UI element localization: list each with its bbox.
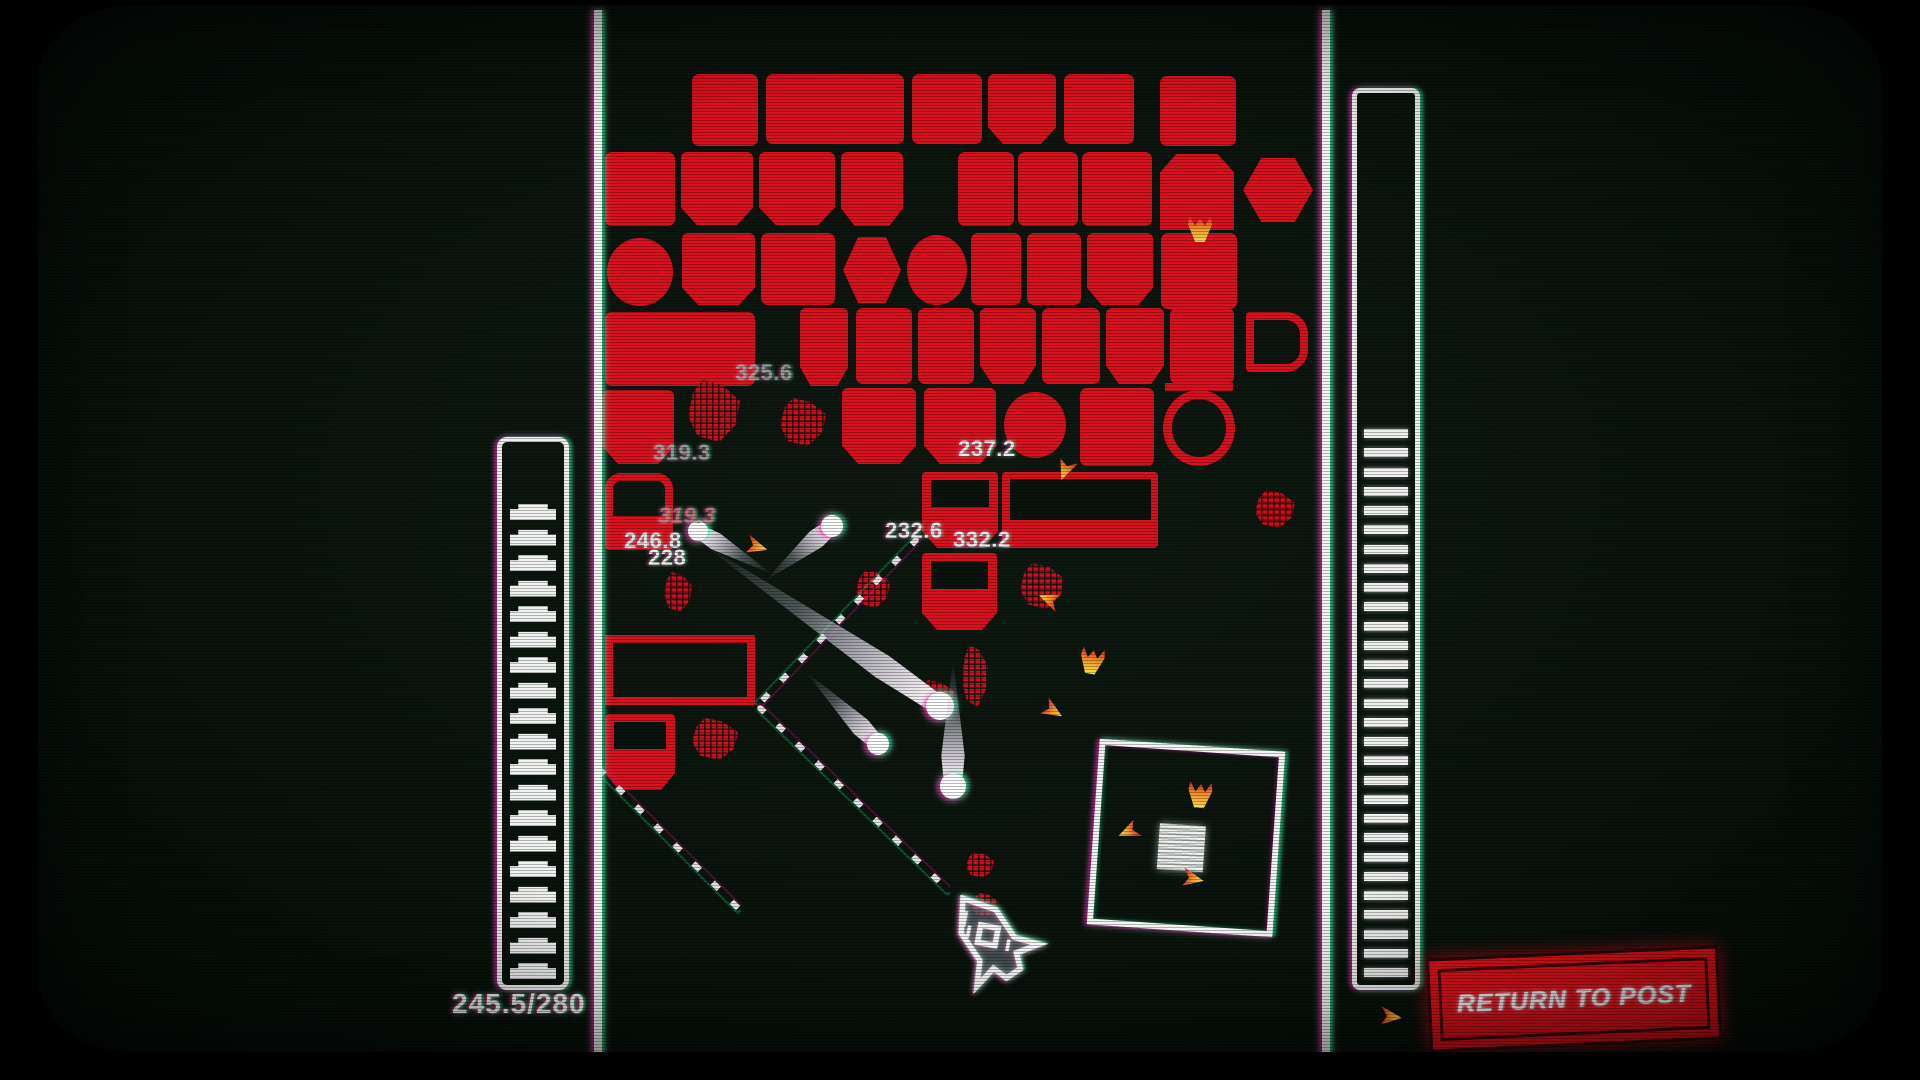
block-sq <box>1064 74 1134 144</box>
block-octb <box>842 388 916 464</box>
block-ring <box>1163 390 1235 466</box>
block-octb <box>800 308 848 386</box>
ammo-segment <box>510 785 556 801</box>
progress-bar-segment <box>1364 853 1408 862</box>
ammo-segment <box>510 606 556 622</box>
progress-bar-segment <box>1364 737 1408 746</box>
ammo-segment <box>510 887 556 903</box>
ammo-count-label: 245.5/280 <box>452 988 586 1020</box>
block-octb <box>681 152 753 225</box>
projectile-ball <box>940 773 966 799</box>
block-outline <box>605 635 755 705</box>
block-octb <box>1106 308 1164 384</box>
block-sq <box>918 308 974 384</box>
debris-cluster <box>962 645 988 707</box>
progress-bar-segment <box>1364 776 1408 785</box>
ammo-segment <box>510 963 556 979</box>
block-sq <box>692 74 758 146</box>
block-octb <box>980 308 1036 384</box>
left-wall <box>594 10 602 1062</box>
progress-bar-segment <box>1364 718 1408 727</box>
debris-cluster <box>692 718 738 760</box>
progress-bar-segment <box>1364 602 1408 611</box>
progress-bar-segment <box>1364 795 1408 804</box>
progress-bar-segment <box>1364 679 1408 688</box>
block-sq <box>1042 308 1100 384</box>
block-sq <box>856 308 912 384</box>
progress-bar-segment <box>1364 891 1408 900</box>
block-circle <box>907 235 967 305</box>
value-label: 319.3 <box>653 440 711 466</box>
block-octb <box>1087 233 1153 305</box>
progress-bar-segment <box>1364 910 1408 919</box>
ammo-segment <box>510 581 556 597</box>
block-hex <box>1243 158 1313 222</box>
progress-bar-segment <box>1364 448 1408 457</box>
block-winb <box>922 553 997 630</box>
block-sq <box>1161 233 1237 309</box>
ammo-segment <box>510 708 556 724</box>
block-octb <box>759 152 835 225</box>
block-octt <box>1160 154 1234 230</box>
value-label: 332.2 <box>953 527 1011 553</box>
block-octb <box>988 74 1056 144</box>
block-sq <box>971 233 1021 305</box>
spark-arrow-particle <box>1378 1004 1403 1028</box>
value-label: 325.6 <box>735 360 793 386</box>
ammo-segment <box>510 810 556 826</box>
block-sq <box>1018 152 1078 226</box>
ammo-segment <box>510 657 556 673</box>
ammo-segment <box>510 504 556 520</box>
progress-bar-segment <box>1364 872 1408 881</box>
aim-trajectory-dots <box>596 766 742 912</box>
block-dshape <box>1246 312 1308 372</box>
block-sq <box>958 152 1014 226</box>
return-to-post-button[interactable]: RETURN TO POST <box>1426 945 1722 1052</box>
ammo-segment <box>510 836 556 852</box>
block-sq <box>1027 233 1081 305</box>
progress-bar-segment <box>1364 930 1408 939</box>
return-to-post-label: RETURN TO POST <box>1456 979 1691 1019</box>
projectile-ball <box>821 515 843 537</box>
block-sq <box>1082 152 1152 226</box>
progress-bar-segment <box>1364 429 1408 438</box>
block-sq <box>766 74 904 144</box>
ammo-segment <box>510 861 556 877</box>
progress-bar-segment <box>1364 660 1408 669</box>
ammo-segment <box>510 938 556 954</box>
value-label: 237.2 <box>958 436 1016 462</box>
ammo-segment <box>510 555 556 571</box>
progress-bar-segment <box>1364 564 1408 573</box>
progress-gauge <box>1352 88 1420 990</box>
progress-bar-segment <box>1364 487 1408 496</box>
ammo-segment <box>510 759 556 775</box>
spark-arrow-particle <box>1038 695 1067 724</box>
block-sq <box>1080 388 1154 466</box>
block-sq <box>605 152 675 226</box>
block-octb <box>841 152 903 226</box>
progress-bar-segment <box>1364 641 1408 650</box>
progress-bar-stack <box>1357 429 1415 977</box>
target-square-outline <box>1087 739 1286 938</box>
right-wall <box>1322 10 1330 1062</box>
block-sq <box>761 233 835 305</box>
block-sq <box>605 312 755 386</box>
target-square-core <box>1157 823 1206 872</box>
value-label: 232.6 <box>885 518 943 544</box>
value-label: 319.3 <box>658 503 716 529</box>
ammo-gauge <box>497 437 569 990</box>
progress-bar-segment <box>1364 545 1408 554</box>
progress-bar-segment <box>1364 583 1408 592</box>
ammo-segment-stack <box>502 504 564 979</box>
ammo-segment <box>510 530 556 546</box>
progress-bar-segment <box>1364 525 1408 534</box>
block-sq <box>1160 76 1236 146</box>
debris-cluster <box>1255 490 1295 528</box>
debris-cluster <box>664 572 692 612</box>
ammo-segment <box>510 912 556 928</box>
block-sq <box>912 74 982 144</box>
progress-bar-segment <box>1364 468 1408 477</box>
progress-bar-segment <box>1364 622 1408 631</box>
progress-bar-segment <box>1364 968 1408 977</box>
progress-bar-segment <box>1364 949 1408 958</box>
flame-particle <box>1078 646 1106 676</box>
block-winb <box>605 714 675 790</box>
debris-cluster <box>780 398 826 446</box>
progress-bar-segment <box>1364 506 1408 515</box>
block-sq <box>1170 308 1234 384</box>
projectile-trail <box>940 660 966 786</box>
debris-cluster <box>688 380 740 442</box>
progress-bar-segment <box>1364 756 1408 765</box>
debris-cluster <box>1020 563 1064 609</box>
ammo-segment <box>510 734 556 750</box>
block-hex <box>843 237 901 303</box>
value-label: 228 <box>648 545 686 571</box>
block-octb <box>682 233 755 305</box>
block-slot <box>1002 472 1158 548</box>
crt-screen: 325.6319.3237.2319.3246.8228232.6332.2 2… <box>0 0 1920 1080</box>
progress-bar-segment <box>1364 814 1408 823</box>
progress-bar-segment <box>1364 833 1408 842</box>
block-circle <box>607 238 673 306</box>
ammo-segment <box>510 632 556 648</box>
progress-bar-segment <box>1364 699 1408 708</box>
ammo-segment <box>510 683 556 699</box>
projectile-ball <box>867 733 889 755</box>
